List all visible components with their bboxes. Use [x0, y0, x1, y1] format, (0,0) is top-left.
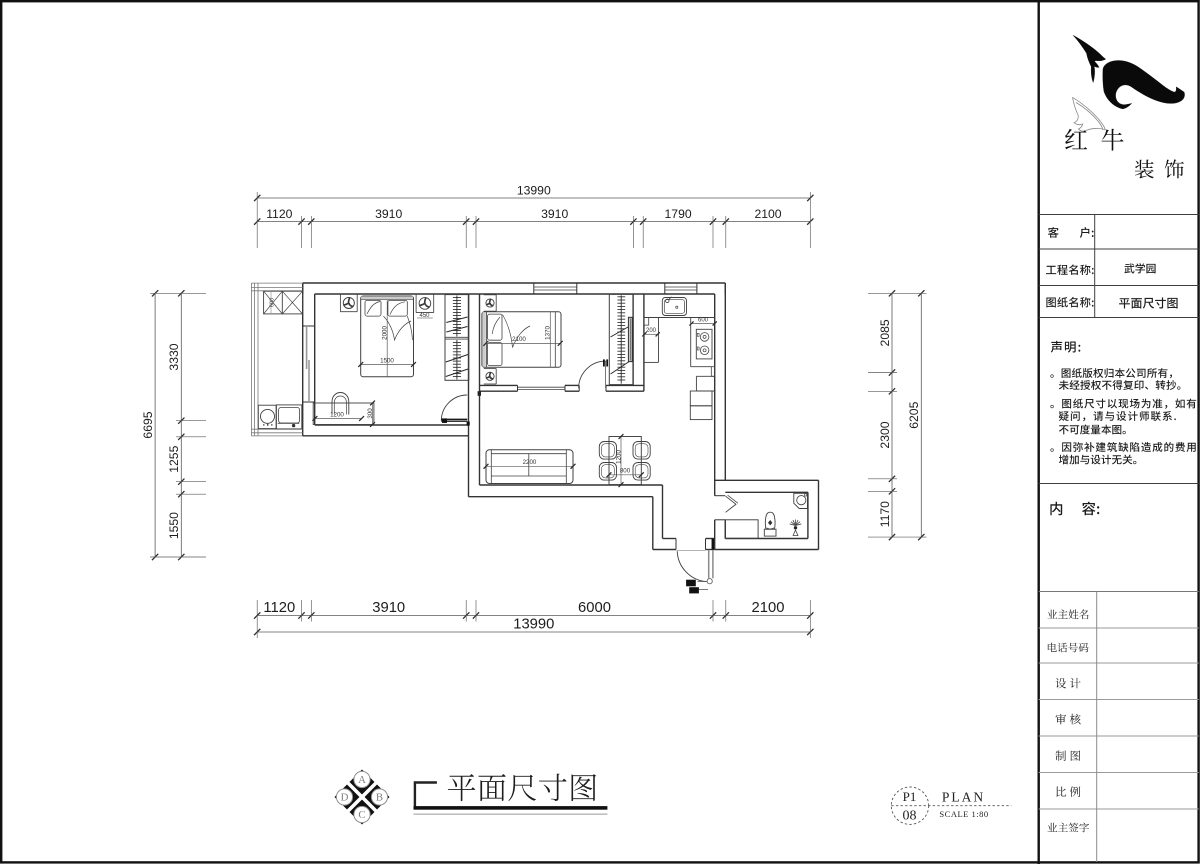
svg-text:1790: 1790 [665, 207, 692, 221]
svg-text:08: 08 [903, 809, 917, 824]
svg-text:2100: 2100 [512, 336, 526, 343]
svg-text:1370: 1370 [545, 326, 552, 340]
svg-text:1120: 1120 [266, 207, 292, 221]
svg-text:3910: 3910 [541, 207, 568, 221]
svg-text:600: 600 [269, 298, 275, 307]
svg-text:6000: 6000 [578, 600, 611, 616]
svg-text:6695: 6695 [141, 411, 155, 438]
svg-text:2100: 2100 [752, 600, 785, 616]
svg-text:300: 300 [367, 408, 374, 419]
svg-text:2100: 2100 [754, 207, 781, 221]
svg-text:6205: 6205 [907, 401, 921, 428]
svg-text:3910: 3910 [372, 600, 405, 616]
svg-text:3910: 3910 [375, 207, 402, 221]
svg-text:B: B [376, 792, 383, 804]
svg-text:PLAN: PLAN [942, 790, 985, 805]
svg-text:P1: P1 [903, 789, 917, 804]
svg-text:2200: 2200 [523, 459, 537, 466]
svg-text:2000: 2000 [381, 326, 388, 340]
svg-text:2300: 2300 [878, 421, 892, 448]
svg-text:SCALE 1:80: SCALE 1:80 [939, 809, 988, 819]
svg-text:13990: 13990 [517, 183, 551, 197]
svg-text:A: A [358, 774, 366, 786]
svg-text:3330: 3330 [167, 343, 181, 370]
svg-text:1200: 1200 [330, 411, 344, 418]
svg-text:2085: 2085 [878, 319, 892, 346]
svg-text:C: C [358, 809, 365, 821]
svg-text:1255: 1255 [167, 445, 181, 472]
svg-text:1200: 1200 [615, 450, 622, 464]
svg-text:13990: 13990 [513, 617, 554, 633]
svg-text:1170: 1170 [878, 501, 892, 527]
svg-text:D: D [341, 792, 349, 804]
svg-text:1550: 1550 [167, 512, 181, 539]
svg-text:600: 600 [698, 317, 709, 323]
svg-text:800: 800 [620, 468, 631, 475]
svg-text:200: 200 [646, 328, 657, 334]
svg-text:1120: 1120 [263, 600, 295, 616]
